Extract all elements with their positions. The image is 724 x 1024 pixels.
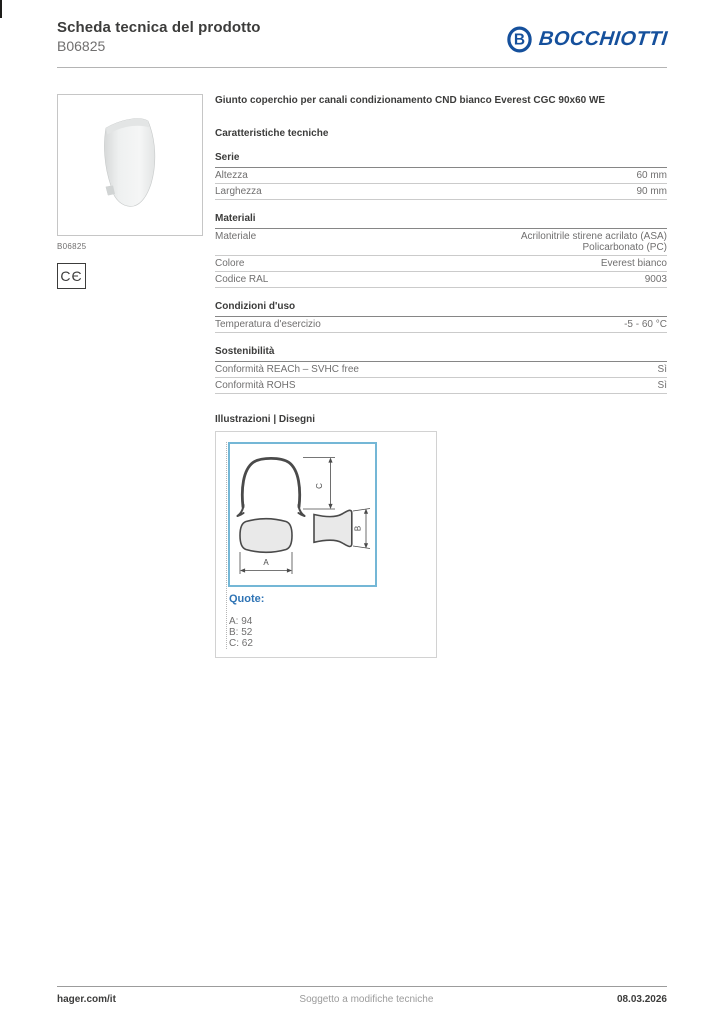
footer-website: hager.com/it (57, 994, 116, 1005)
table-row: Temperatura d'esercizio -5 - 60 °C (215, 317, 667, 333)
row-label: Codice RAL (215, 274, 268, 285)
footer: hager.com/it Soggetto a modifiche tecnic… (57, 994, 667, 1005)
illustration-panel: C A (215, 431, 437, 658)
table-row: Codice RAL 9003 (215, 272, 667, 288)
right-column: Giunto coperchio per canali condizioname… (215, 94, 667, 658)
cover-top-view-drawing (240, 519, 292, 553)
section-title: Sostenibilità (215, 346, 667, 362)
row-label: Colore (215, 258, 244, 269)
brand-wordmark: BOCCHIOTTI (537, 28, 668, 51)
section-condizioni-duso: Condizioni d'uso Temperatura d'esercizio… (215, 301, 667, 333)
ce-mark: CЄ (57, 263, 86, 289)
row-value: Acrilonitrile stirene acrilato (ASA) Pol… (521, 231, 667, 253)
row-label: Altezza (215, 170, 248, 181)
row-value: -5 - 60 °C (624, 319, 667, 330)
dimension-a-label: A (263, 558, 269, 567)
row-value: Sì (658, 380, 667, 391)
page-corner-mark (0, 0, 2, 18)
product-name: Giunto coperchio per canali condizioname… (215, 95, 667, 107)
quote-dimension-a: A: 94 (229, 616, 253, 627)
row-label: Materiale (215, 231, 256, 242)
dimension-b-label: B (354, 526, 363, 531)
row-value: Sì (658, 364, 667, 375)
dimension-b: B (353, 509, 370, 549)
row-label: Larghezza (215, 186, 262, 197)
cover-side-view-drawing (314, 510, 352, 546)
dimension-c: C (303, 458, 335, 510)
row-value: 9003 (645, 274, 667, 285)
section-sostenibilita: Sostenibilità Conformità REACh – SVHC fr… (215, 346, 667, 394)
section-title: Serie (215, 152, 667, 168)
main-content: B06825 CЄ Giunto coperchio per canali co… (0, 68, 724, 658)
row-label: Temperatura d'esercizio (215, 319, 321, 330)
arch-profile-drawing (238, 458, 305, 516)
dimension-c-label: C (315, 483, 324, 489)
technical-drawing-frame: C A (228, 442, 377, 587)
section-title: Condizioni d'uso (215, 301, 667, 317)
datasheet-page: Scheda tecnica del prodotto B06825 B BOC… (0, 0, 724, 1024)
product-image-frame (57, 94, 203, 236)
table-row: Altezza 60 mm (215, 168, 667, 184)
table-row: Colore Everest bianco (215, 256, 667, 272)
illustrations-heading: Illustrazioni | Disegni (215, 414, 667, 425)
row-label: Conformità ROHS (215, 380, 296, 391)
header-titles: Scheda tecnica del prodotto B06825 (57, 19, 261, 56)
table-row: Larghezza 90 mm (215, 184, 667, 200)
section-title: Materiali (215, 213, 667, 229)
footer-divider (57, 986, 667, 987)
quote-dimension-c: C: 62 (229, 638, 253, 649)
svg-text:B: B (513, 32, 524, 49)
product-code: B06825 (57, 37, 261, 56)
quote-values: A: 94 B: 52 C: 62 (229, 616, 253, 649)
characteristics-heading: Caratteristiche tecniche (215, 128, 667, 139)
footer-note: Soggetto a modifiche tecniche (116, 994, 617, 1005)
row-value: 90 mm (636, 186, 667, 197)
row-value: 60 mm (636, 170, 667, 181)
left-column: B06825 CЄ (57, 94, 203, 658)
footer-date: 08.03.2026 (617, 994, 667, 1005)
product-photo (94, 114, 166, 216)
header: Scheda tecnica del prodotto B06825 B BOC… (0, 0, 724, 56)
row-value: Everest bianco (601, 258, 667, 269)
illustration-dotted-border (226, 442, 227, 649)
product-image-caption: B06825 (57, 242, 203, 251)
dimension-a: A (240, 552, 292, 574)
technical-drawing: C A (230, 444, 375, 585)
row-label: Conformità REACh – SVHC free (215, 364, 359, 375)
section-serie: Serie Altezza 60 mm Larghezza 90 mm (215, 152, 667, 200)
table-row: Conformità ROHS Sì (215, 378, 667, 394)
brand-emblem-icon: B (506, 26, 533, 53)
page-title: Scheda tecnica del prodotto (57, 19, 261, 37)
table-row: Materiale Acrilonitrile stirene acrilato… (215, 229, 667, 256)
quote-dimension-b: B: 52 (229, 627, 253, 638)
quote-heading: Quote: (229, 593, 264, 605)
table-row: Conformità REACh – SVHC free Sì (215, 362, 667, 378)
section-materiali: Materiali Materiale Acrilonitrile stiren… (215, 213, 667, 288)
brand-logo: B BOCCHIOTTI (506, 26, 667, 53)
